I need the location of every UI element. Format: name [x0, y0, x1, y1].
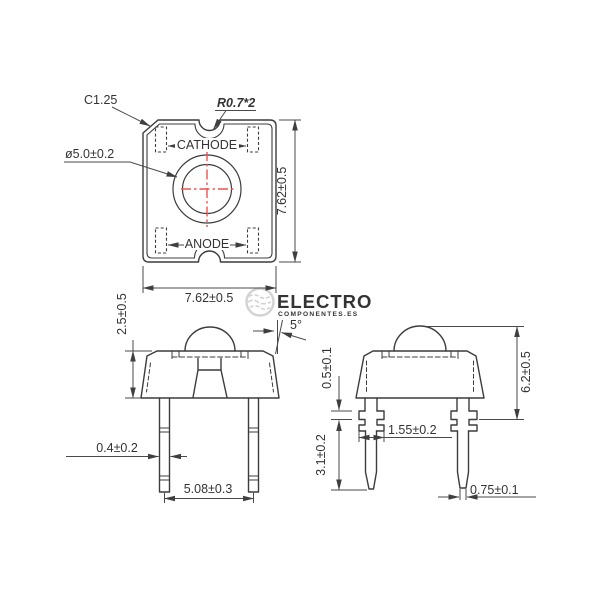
pad-bottom-right	[248, 228, 259, 253]
pad-top-left	[156, 127, 167, 152]
anode-label: ANODE	[185, 237, 229, 251]
pad-bottom-left	[156, 228, 167, 253]
side-view-body	[356, 326, 484, 398]
standoff-width-text: 1.55±0.2	[388, 423, 437, 437]
led-dimension-drawing: ELECTRO COMPONENTES.ES CATHODE ANODE	[0, 0, 600, 600]
front-view-body	[141, 327, 279, 398]
top-view-height-text: 7.62±0.5	[275, 167, 289, 216]
side-view: 0.5±0.1 3.1±0.2 1.55±0.2 6.2±0.5	[314, 326, 536, 500]
cathode-label: CATHODE	[177, 138, 237, 152]
standoff-height-dim	[331, 376, 352, 420]
drawing-canvas: ELECTRO COMPONENTES.ES CATHODE ANODE	[0, 0, 600, 600]
watermark-tagline: COMPONENTES.ES	[278, 311, 358, 318]
front-view-leads	[160, 398, 259, 492]
watermark-globe-icon	[247, 289, 274, 316]
overall-height-dim	[427, 327, 524, 420]
watermark-brand: ELECTRO	[277, 291, 372, 312]
front-view-reflector	[193, 359, 227, 398]
front-body-height-text: 2.5±0.5	[115, 293, 129, 335]
lead-length-text: 3.1±0.2	[314, 434, 328, 476]
front-view: 2.5±0.5 0.4±0.2 5.08±0.3 5°	[66, 293, 306, 503]
draft-angle-text: 5°	[290, 318, 302, 332]
watermark: ELECTRO COMPONENTES.ES	[247, 289, 373, 319]
lead-pitch-text: 5.08±0.3	[184, 482, 233, 496]
chamfer-label: C1.25	[84, 93, 117, 107]
side-view-leads	[359, 398, 477, 489]
pad-top-right	[248, 127, 259, 152]
lead-tip-text: 0.75±0.1	[470, 483, 519, 497]
standoff-height-text: 0.5±0.1	[320, 347, 334, 389]
center-crosshair	[181, 151, 234, 227]
front-body-height-dim	[125, 340, 152, 398]
chamfer-leader	[112, 107, 150, 126]
overall-height-text: 6.2±0.5	[519, 351, 533, 393]
hole-diameter-leader	[64, 162, 177, 177]
corner-radius-label: R0.7*2	[217, 96, 255, 110]
top-view: CATHODE ANODE C1.25 R0.7*2 ø5.0±0.2 7.62…	[64, 93, 301, 305]
lead-thickness-text: 0.4±0.2	[96, 441, 138, 455]
hole-diameter-label: ø5.0±0.2	[65, 147, 114, 161]
top-view-width-text: 7.62±0.5	[185, 291, 234, 305]
